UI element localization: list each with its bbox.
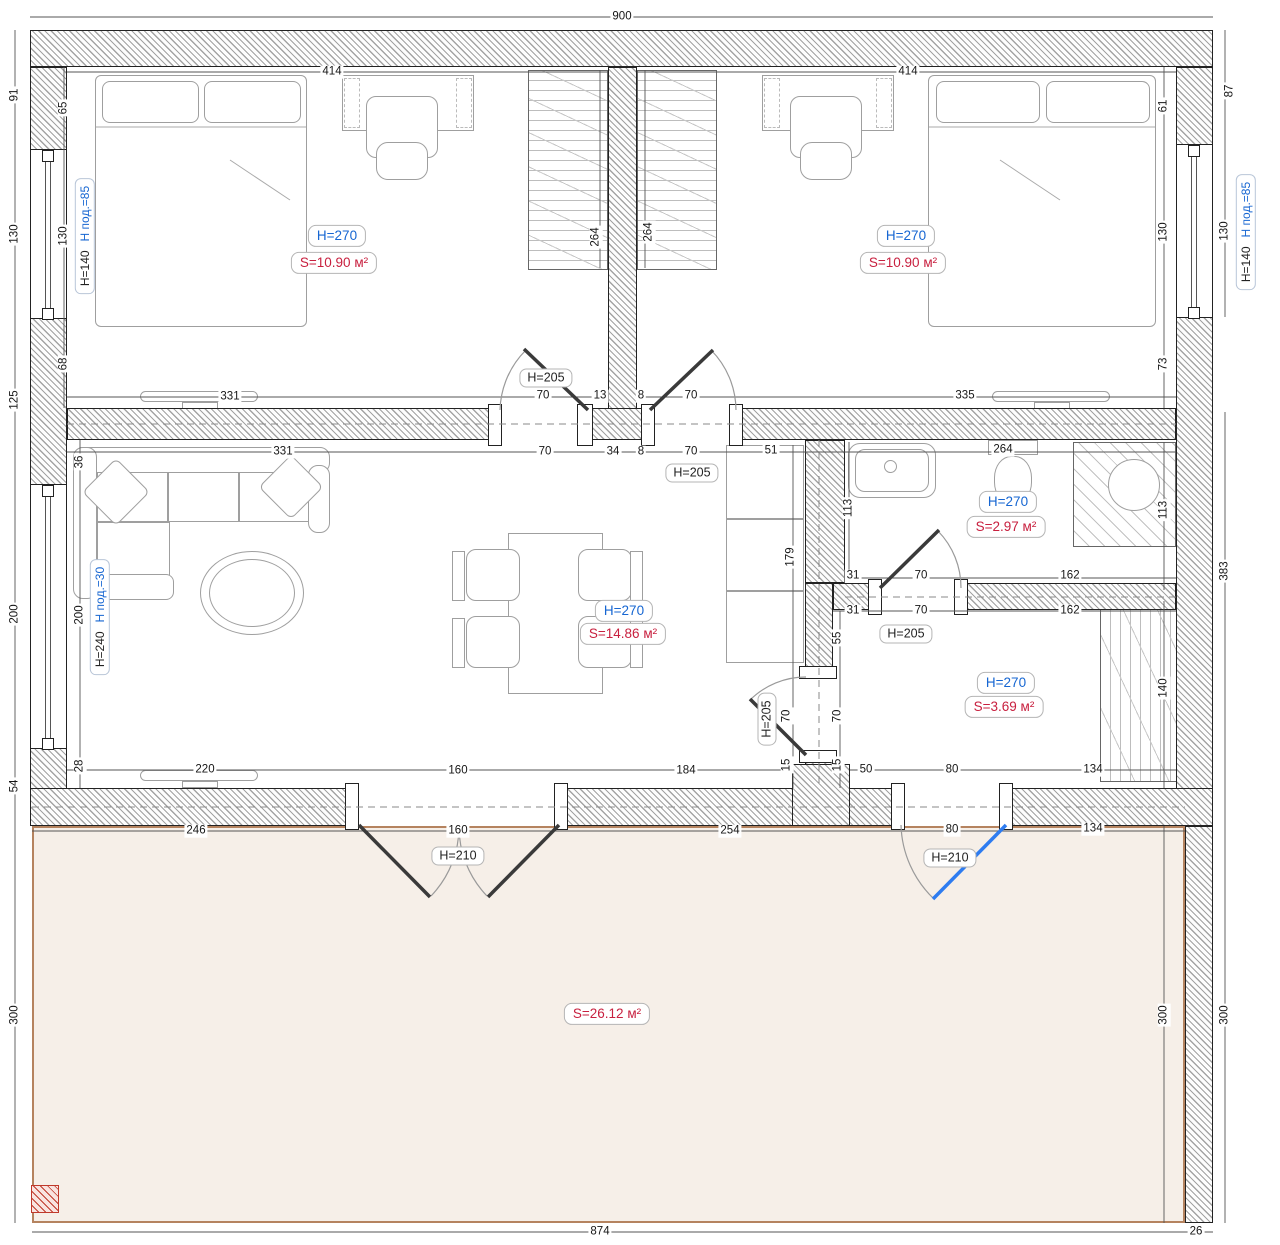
dim-label: 61 [1158,98,1171,115]
room-area-label: S=3.69 м² [965,696,1044,718]
dim-label: 8 [636,446,646,459]
dim-label: 50 [858,764,875,777]
dim-label: 160 [446,765,469,778]
dim-label: 179 [785,545,798,568]
room-height-label: H=270 [308,225,366,247]
room-height-label: H=270 [979,491,1037,513]
wall-hall-living [805,583,833,677]
window-sill-height: H под.=85 [1239,182,1253,238]
dim-label: 264 [991,444,1014,457]
door-jamb [999,783,1013,830]
chair-back [452,551,465,601]
dim-label: 70 [683,446,700,459]
dim-label: 68 [58,356,71,373]
window-stop [42,150,54,162]
dim-label: 300 [9,1003,22,1026]
shower-drain [1108,459,1160,511]
dim-label: 70 [781,708,794,725]
door-jamb [954,579,968,615]
window-height-label: H=140 H под.=85 [75,178,95,294]
cabinet [726,591,804,663]
window-glazing [1191,147,1197,317]
window-stop [42,308,54,320]
window-glazing [45,487,51,748]
door-jamb [868,579,882,615]
dim-label: 130 [1158,220,1171,243]
dim-label: 300 [1219,1003,1232,1026]
pillow [204,81,301,123]
room-area-label: S=14.86 м² [580,623,666,645]
dim-label: 246 [184,825,207,838]
floor-plan: 900 91 130 125 200 54 300 65 130 68 36 2… [0,0,1280,1245]
door-jamb [641,404,655,446]
window-height: H=140 [78,250,92,286]
dim-label: 34 [605,446,622,459]
faucet [884,460,897,473]
dim-label: 70 [913,605,930,618]
dim-label: 13 [592,390,609,403]
dim-label: 331 [218,391,241,404]
dim-label: 130 [58,224,71,247]
window-sill-height: H под.=30 [93,567,107,623]
door-height-label: H=205 [758,692,777,745]
dim-label: 54 [9,778,22,795]
dim-label: 130 [9,222,22,245]
pillow [102,81,199,123]
window-height-label: H=140 H под.=85 [1236,174,1256,290]
wall-right [1176,67,1213,145]
chair-back [452,618,465,668]
chair-seat [800,142,852,180]
door-jamb [729,404,743,446]
door-height-label: H=210 [923,849,976,868]
dim-label: 220 [193,764,216,777]
dim-label: 28 [74,758,87,775]
dim-label: 51 [763,445,780,458]
pillow [1046,81,1150,123]
wall-top [30,30,1213,67]
dim-label: 87 [1224,83,1237,100]
wall-bottom [1008,788,1213,826]
dim-label: 331 [271,446,294,459]
dim-label: 264 [590,225,603,248]
chair [466,549,520,601]
tv [992,391,1110,402]
wall-middle [67,408,500,440]
terrace-column-marker [31,1185,59,1213]
dim-label: 125 [9,388,22,411]
dim-label: 31 [845,570,862,583]
door-jamb [345,783,359,830]
window-stop [1188,145,1200,157]
room-area-label: S=10.90 м² [291,252,377,274]
chair [466,616,520,668]
dim-label: 70 [683,390,700,403]
desk-leaf [456,78,472,128]
dim-label: 65 [58,100,71,117]
dim-label: 162 [1058,570,1081,583]
dim-label: 300 [1158,1003,1171,1026]
desk-leaf [876,78,892,128]
dim-label: 184 [674,765,697,778]
desk-leaf [764,78,780,128]
dim-label: 55 [832,630,845,647]
wall-bedroom-partition [608,67,637,412]
coffee-table-inner [209,559,295,627]
door-jamb [577,404,593,446]
wall-hall-living [805,440,845,583]
door-jamb [799,666,837,679]
pillow [936,81,1040,123]
window-stop [42,738,54,750]
dim-label: 140 [1158,676,1171,699]
window-stop [1188,307,1200,319]
door-jamb [891,783,905,830]
dim-label: 113 [843,497,856,519]
wall-left [30,318,67,485]
door-height-label: H=205 [879,625,932,644]
dim-label: 414 [896,66,919,79]
dim-label: 414 [320,66,343,79]
dim-label: 160 [446,825,469,838]
dim-label: 70 [913,570,930,583]
door-height-label: H=205 [519,369,572,388]
wall-right [1176,317,1213,826]
room-height-label: H=270 [877,225,935,247]
sofa-cushion [168,472,239,522]
dim-label: 70 [537,446,554,459]
dim-label: 134 [1081,764,1104,777]
dim-label: 80 [944,824,961,837]
dim-label: 8 [636,390,646,403]
dim-label: 900 [610,11,633,24]
dim-label: 70 [535,390,552,403]
wall-terrace-right [1185,826,1213,1223]
dim-label: 130 [1219,219,1232,242]
door-height-label: H=205 [665,464,718,483]
dim-label: 874 [588,1226,611,1239]
dim-label: 200 [9,602,22,625]
dim-label: 15 [781,757,794,774]
room-height-label: H=270 [595,600,653,622]
window-height: H=140 [1239,246,1253,282]
room-area-label: S=26.12 м² [564,1003,650,1025]
dim-label: 36 [74,454,87,471]
dim-label: 15 [832,757,845,774]
window-height: H=240 [93,631,107,667]
window-glazing [45,152,51,318]
wall-middle [733,408,1176,440]
dim-label: 70 [832,708,845,725]
dim-label: 26 [1188,1226,1205,1239]
window-stop [42,485,54,497]
window-sill-height: H под.=85 [78,186,92,242]
window-height-label: H=240 H под.=30 [90,559,110,675]
chair-back [630,551,643,601]
dim-label: 91 [9,87,22,104]
dim-label: 162 [1058,605,1081,618]
dim-label: 254 [718,825,741,838]
dim-label: 383 [1219,559,1232,582]
dim-label: 200 [74,603,87,626]
dim-label: 134 [1081,823,1104,836]
door-height-label: H=210 [431,847,484,866]
dim-label: 113 [1158,499,1171,521]
chair-seat [376,142,428,180]
dim-label: 80 [944,764,961,777]
dim-label: 31 [845,605,862,618]
chair [578,549,632,601]
dim-label: 264 [643,220,656,243]
door-jamb [554,783,568,830]
room-height-label: H=270 [977,672,1035,694]
dim-label: 73 [1158,356,1171,373]
tv-stand [182,781,218,788]
wall-bottom [30,788,355,826]
door-jamb [488,404,502,446]
dim-label: 335 [953,390,976,403]
desk-leaf [344,78,360,128]
room-area-label: S=10.90 м² [860,252,946,274]
room-area-label: S=2.97 м² [967,516,1046,538]
